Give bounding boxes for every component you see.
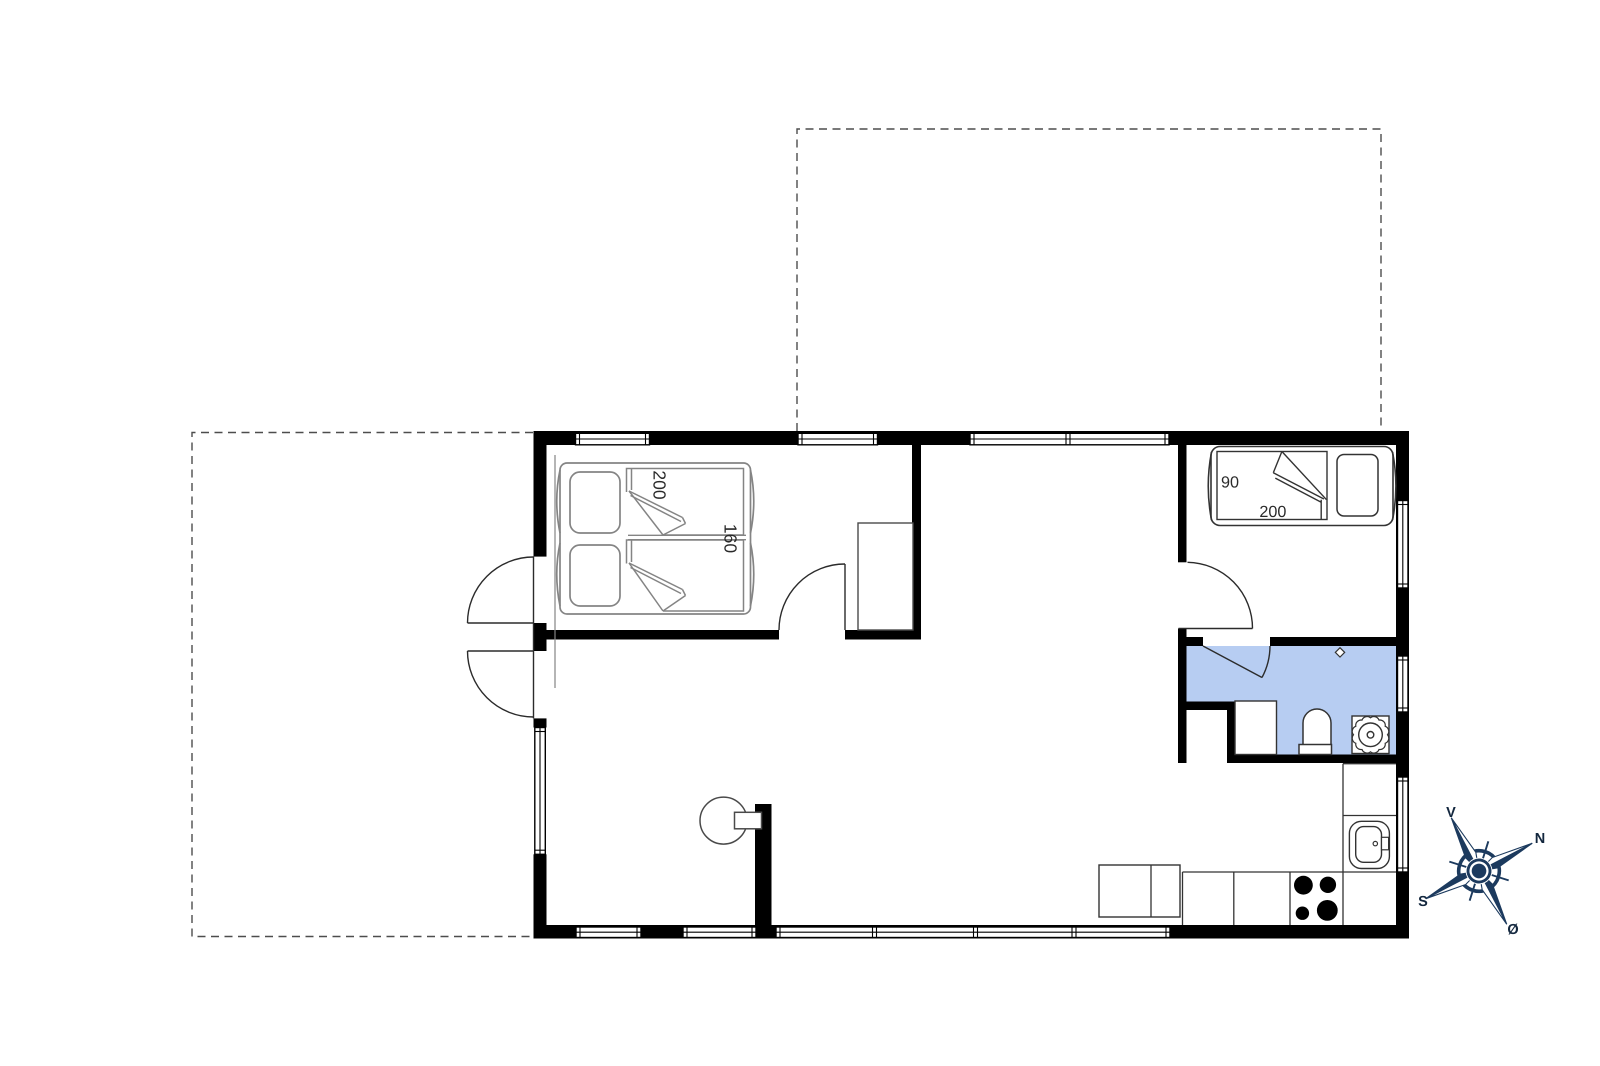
svg-text:200: 200 [1259,503,1286,521]
svg-text:160: 160 [721,524,741,553]
svg-text:N: N [1535,831,1545,847]
svg-text:90: 90 [1221,474,1239,492]
svg-text:S: S [1418,894,1428,910]
svg-text:Ø: Ø [1507,922,1518,938]
svg-text:200: 200 [650,470,670,499]
svg-text:V: V [1446,805,1456,821]
